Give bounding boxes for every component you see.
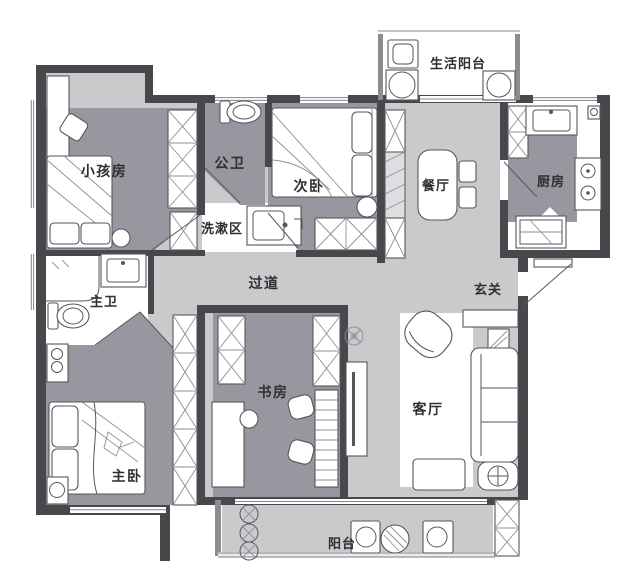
desk-chair <box>240 410 258 428</box>
label-study: 书房 <box>258 384 289 400</box>
bedside-cabinet <box>47 344 68 382</box>
shoe-cabinet <box>463 310 518 327</box>
kids-wardrobe <box>168 110 197 208</box>
kitchen-column <box>508 106 528 158</box>
stool <box>112 229 130 247</box>
label-public-bath: 公卫 <box>215 155 246 171</box>
bedside-stool <box>357 197 377 217</box>
label-corridor: 过道 <box>249 275 280 291</box>
tv-console <box>346 362 367 456</box>
study-closet-left <box>218 316 245 384</box>
wash-area-fixtures <box>247 206 302 245</box>
label-master-bedroom: 主卧 <box>112 468 143 484</box>
coffee-table <box>413 459 465 490</box>
pillow <box>352 155 372 196</box>
study-closet-right <box>313 316 340 386</box>
pillow <box>52 406 78 447</box>
label-wash-area: 洗漱区 <box>201 221 243 236</box>
door-leaf <box>534 259 572 267</box>
label-life-balcony: 生活阳台 <box>430 56 486 71</box>
dining-column-strip <box>385 110 405 258</box>
master-wardrobe <box>173 315 197 505</box>
kids-desk <box>47 76 69 158</box>
label-balcony: 阳台 <box>328 536 356 551</box>
sofa <box>471 348 518 462</box>
floor-plan-drawing: 生活阳台 小孩房 公卫 次卧 餐厅 厨房 洗漱区 过道 玄关 主卫 书房 客厅 … <box>0 0 640 561</box>
dining-chair <box>459 161 476 182</box>
stove-counter <box>575 158 601 210</box>
label-master-bath: 主卫 <box>90 294 118 309</box>
label-living-room: 客厅 <box>412 401 444 417</box>
dryer-icon <box>483 71 515 100</box>
entry-door <box>523 259 572 306</box>
label-dining: 餐厅 <box>421 178 450 193</box>
tv-icon <box>352 372 355 446</box>
pillow <box>81 223 110 244</box>
washer-icon <box>386 70 418 100</box>
label-kitchen: 厨房 <box>537 174 565 189</box>
study-bookshelf <box>315 390 338 487</box>
corner-column <box>495 500 519 556</box>
pillow <box>50 223 79 244</box>
second-bedroom-wardrobe <box>315 218 377 250</box>
kids-cabinet <box>170 212 197 250</box>
door-swing <box>523 264 571 306</box>
dining-chair <box>459 187 476 208</box>
label-kids-room: 小孩房 <box>81 163 128 179</box>
corner-unit <box>588 106 600 119</box>
pillow <box>352 112 372 153</box>
study-desk <box>212 402 244 487</box>
floor-plan: 生活阳台 小孩房 公卫 次卧 餐厅 厨房 洗漱区 过道 玄关 主卫 书房 客厅 … <box>0 0 640 561</box>
label-second-bedroom: 次卧 <box>294 178 325 194</box>
label-entry: 玄关 <box>474 282 502 297</box>
toilet-icon <box>227 101 261 123</box>
